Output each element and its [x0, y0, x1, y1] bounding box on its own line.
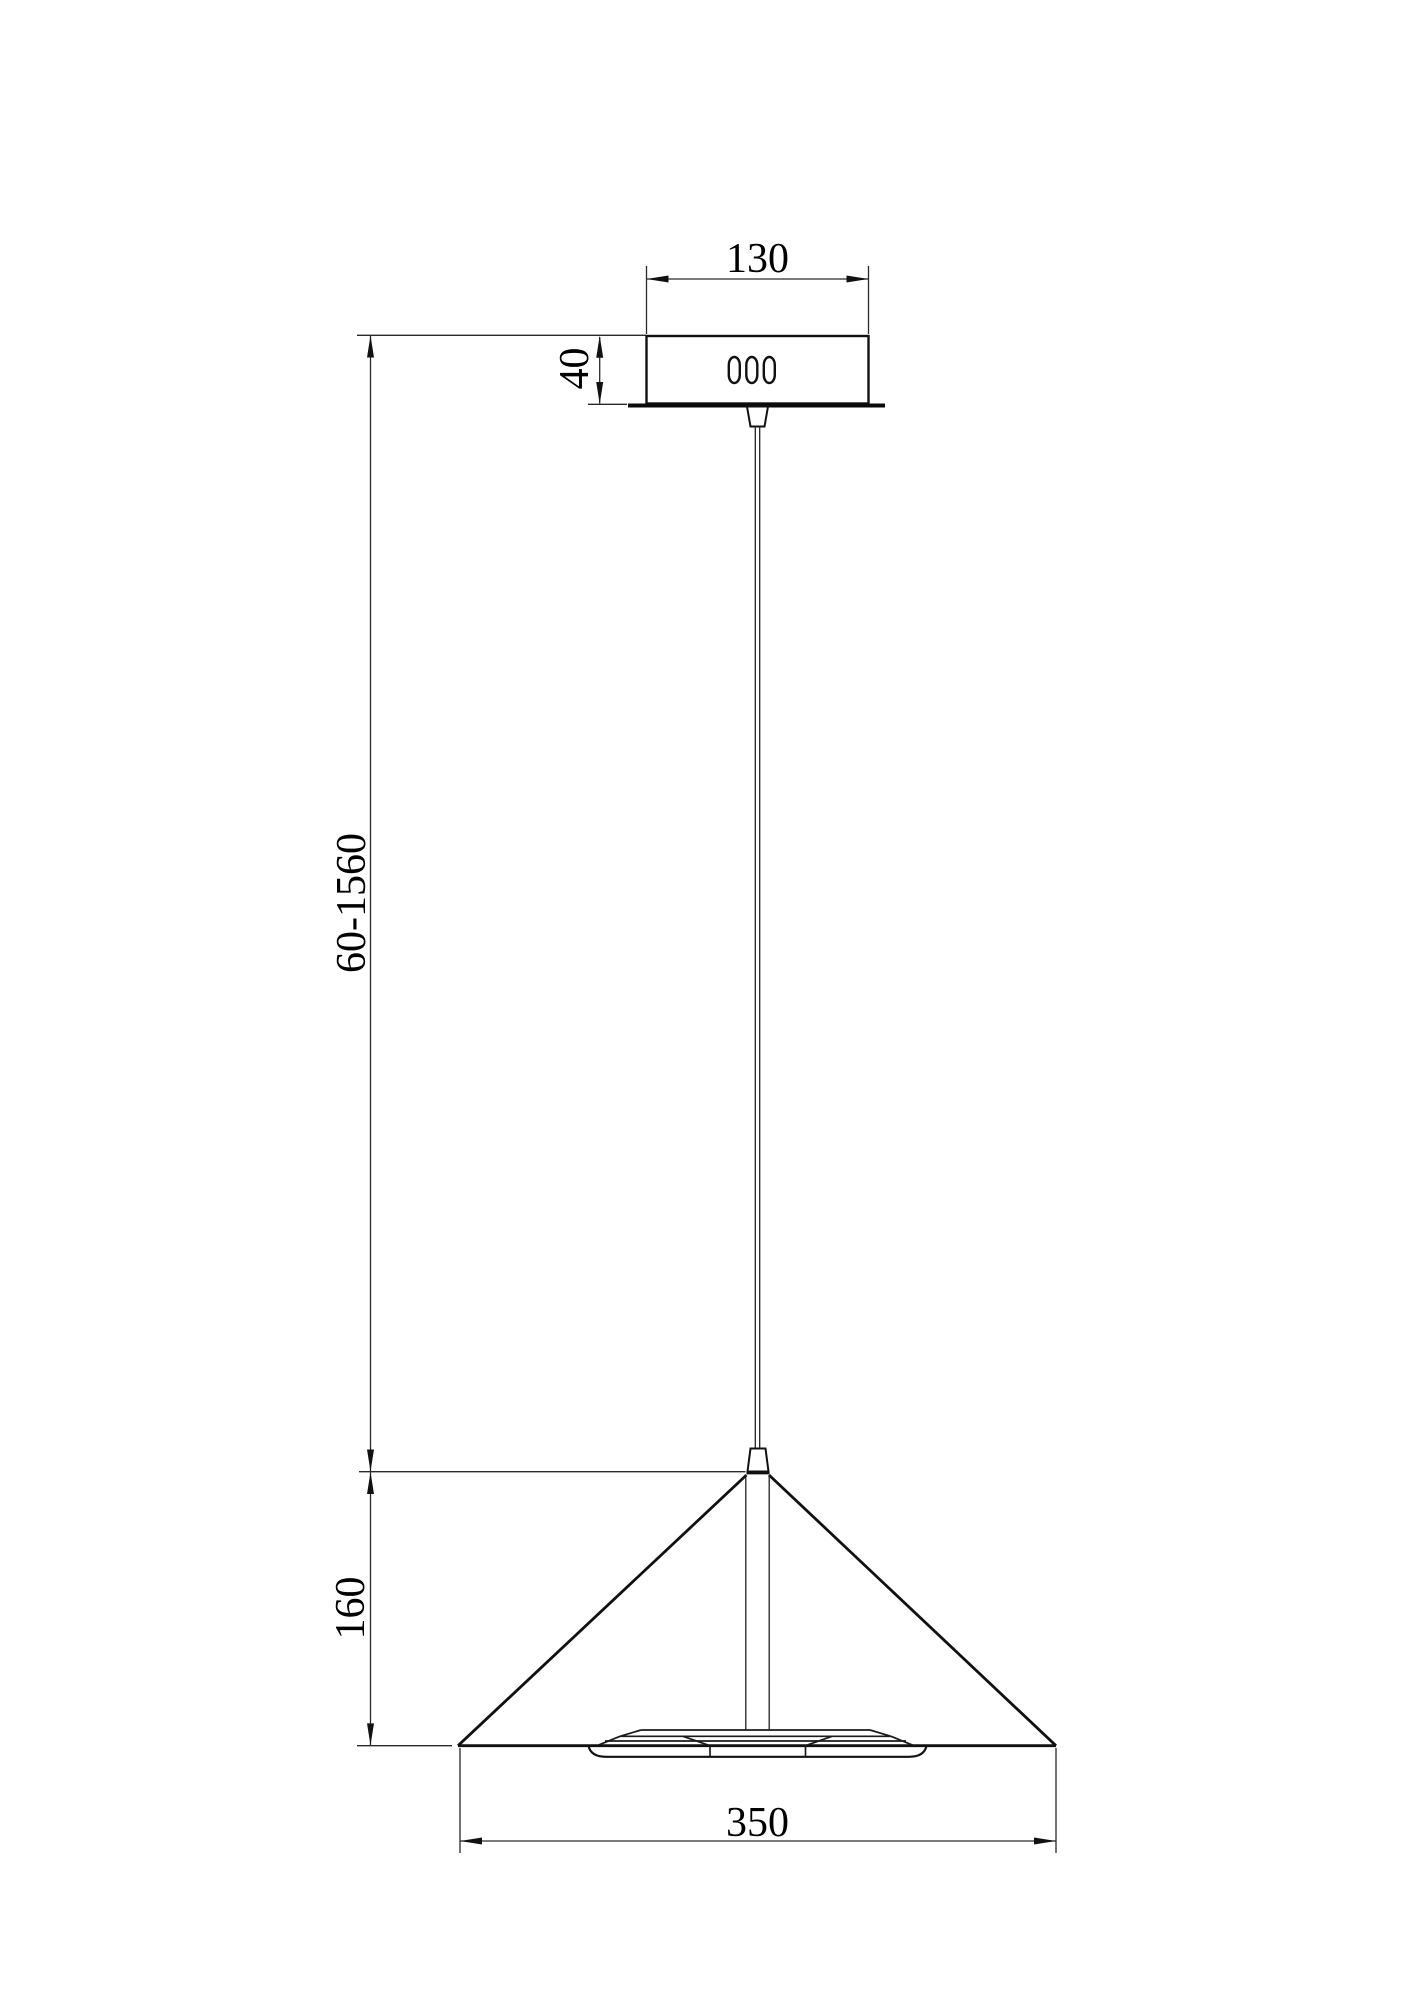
dim-label-canopy-width: 130 [726, 236, 789, 282]
dim-label-canopy-height: 40 [552, 348, 598, 390]
arrow-left-icon [647, 276, 669, 283]
diffuser-dish [589, 1746, 927, 1757]
slot-icon [746, 357, 757, 383]
cord-grip [747, 407, 768, 427]
diffuser-step [620, 1730, 641, 1736]
canopy-slots [729, 357, 775, 383]
ceiling-canopy [628, 336, 885, 427]
suspension-cable [755, 427, 759, 1450]
dim-shade-diameter: 350 [460, 1748, 1056, 1853]
pendant-lamp-technical-drawing: 130 40 60-1560 160 [0, 0, 1413, 2000]
arrow-up-icon [367, 1472, 374, 1494]
arrow-right-icon [847, 276, 869, 283]
arrow-down-icon [367, 1450, 374, 1472]
arrow-down-icon [367, 1723, 374, 1745]
apex-connector [748, 1449, 769, 1472]
dim-suspension-length: 60-1560 [329, 336, 375, 1472]
dim-canopy-height: 40 [357, 335, 646, 404]
dim-canopy-width: 130 [647, 236, 869, 334]
drawing-sheet: 130 40 60-1560 160 [0, 0, 1413, 2000]
slot-icon [729, 357, 740, 383]
arrow-right-icon [1034, 1838, 1056, 1845]
arrow-left-icon [460, 1838, 482, 1845]
diffuser-step [870, 1730, 891, 1736]
slot-icon [764, 357, 775, 383]
dim-label-shade-diameter: 350 [726, 1800, 789, 1846]
cone-left-edge [458, 1475, 747, 1746]
dim-shade-height: 160 [328, 1472, 746, 1746]
arrow-up-icon [367, 336, 374, 358]
cone-shade [458, 1449, 1056, 1757]
dim-label-shade-height: 160 [328, 1577, 374, 1640]
dim-label-suspension-length: 60-1560 [329, 833, 375, 973]
cone-right-edge [769, 1475, 1056, 1746]
diffuser-lens [589, 1730, 927, 1757]
